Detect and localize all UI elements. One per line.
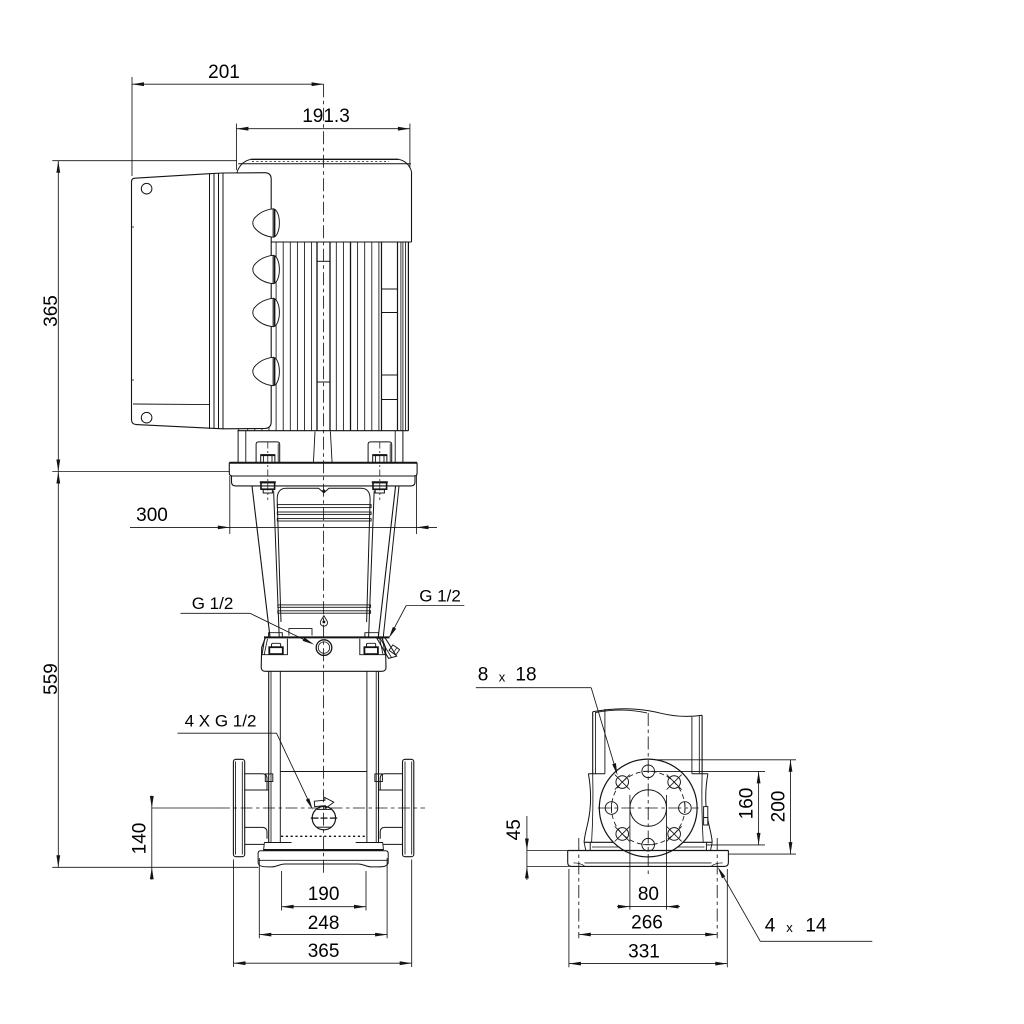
svg-text:4: 4 (765, 915, 776, 936)
svg-text:45: 45 (504, 819, 525, 840)
svg-text:365: 365 (41, 295, 62, 327)
svg-text:200: 200 (769, 791, 790, 823)
svg-text:331: 331 (628, 941, 660, 962)
svg-text:8: 8 (478, 665, 489, 686)
svg-text:365: 365 (308, 941, 340, 962)
svg-text:80: 80 (638, 884, 659, 905)
svg-text:559: 559 (41, 663, 62, 695)
svg-text:G 1/2: G 1/2 (419, 586, 461, 605)
svg-text:18: 18 (515, 665, 536, 686)
svg-text:248: 248 (308, 913, 340, 934)
svg-text:191.3: 191.3 (302, 106, 350, 127)
svg-text:266: 266 (631, 913, 663, 934)
svg-text:G 1/2: G 1/2 (192, 594, 234, 613)
svg-text:160: 160 (737, 788, 758, 820)
svg-text:x: x (786, 920, 793, 935)
svg-text:300: 300 (136, 505, 168, 526)
svg-text:190: 190 (308, 884, 340, 905)
svg-text:201: 201 (208, 62, 240, 83)
svg-text:14: 14 (805, 915, 827, 936)
svg-text:4 X G 1/2: 4 X G 1/2 (185, 712, 257, 731)
svg-text:x: x (499, 670, 506, 685)
svg-text:140: 140 (130, 823, 151, 855)
